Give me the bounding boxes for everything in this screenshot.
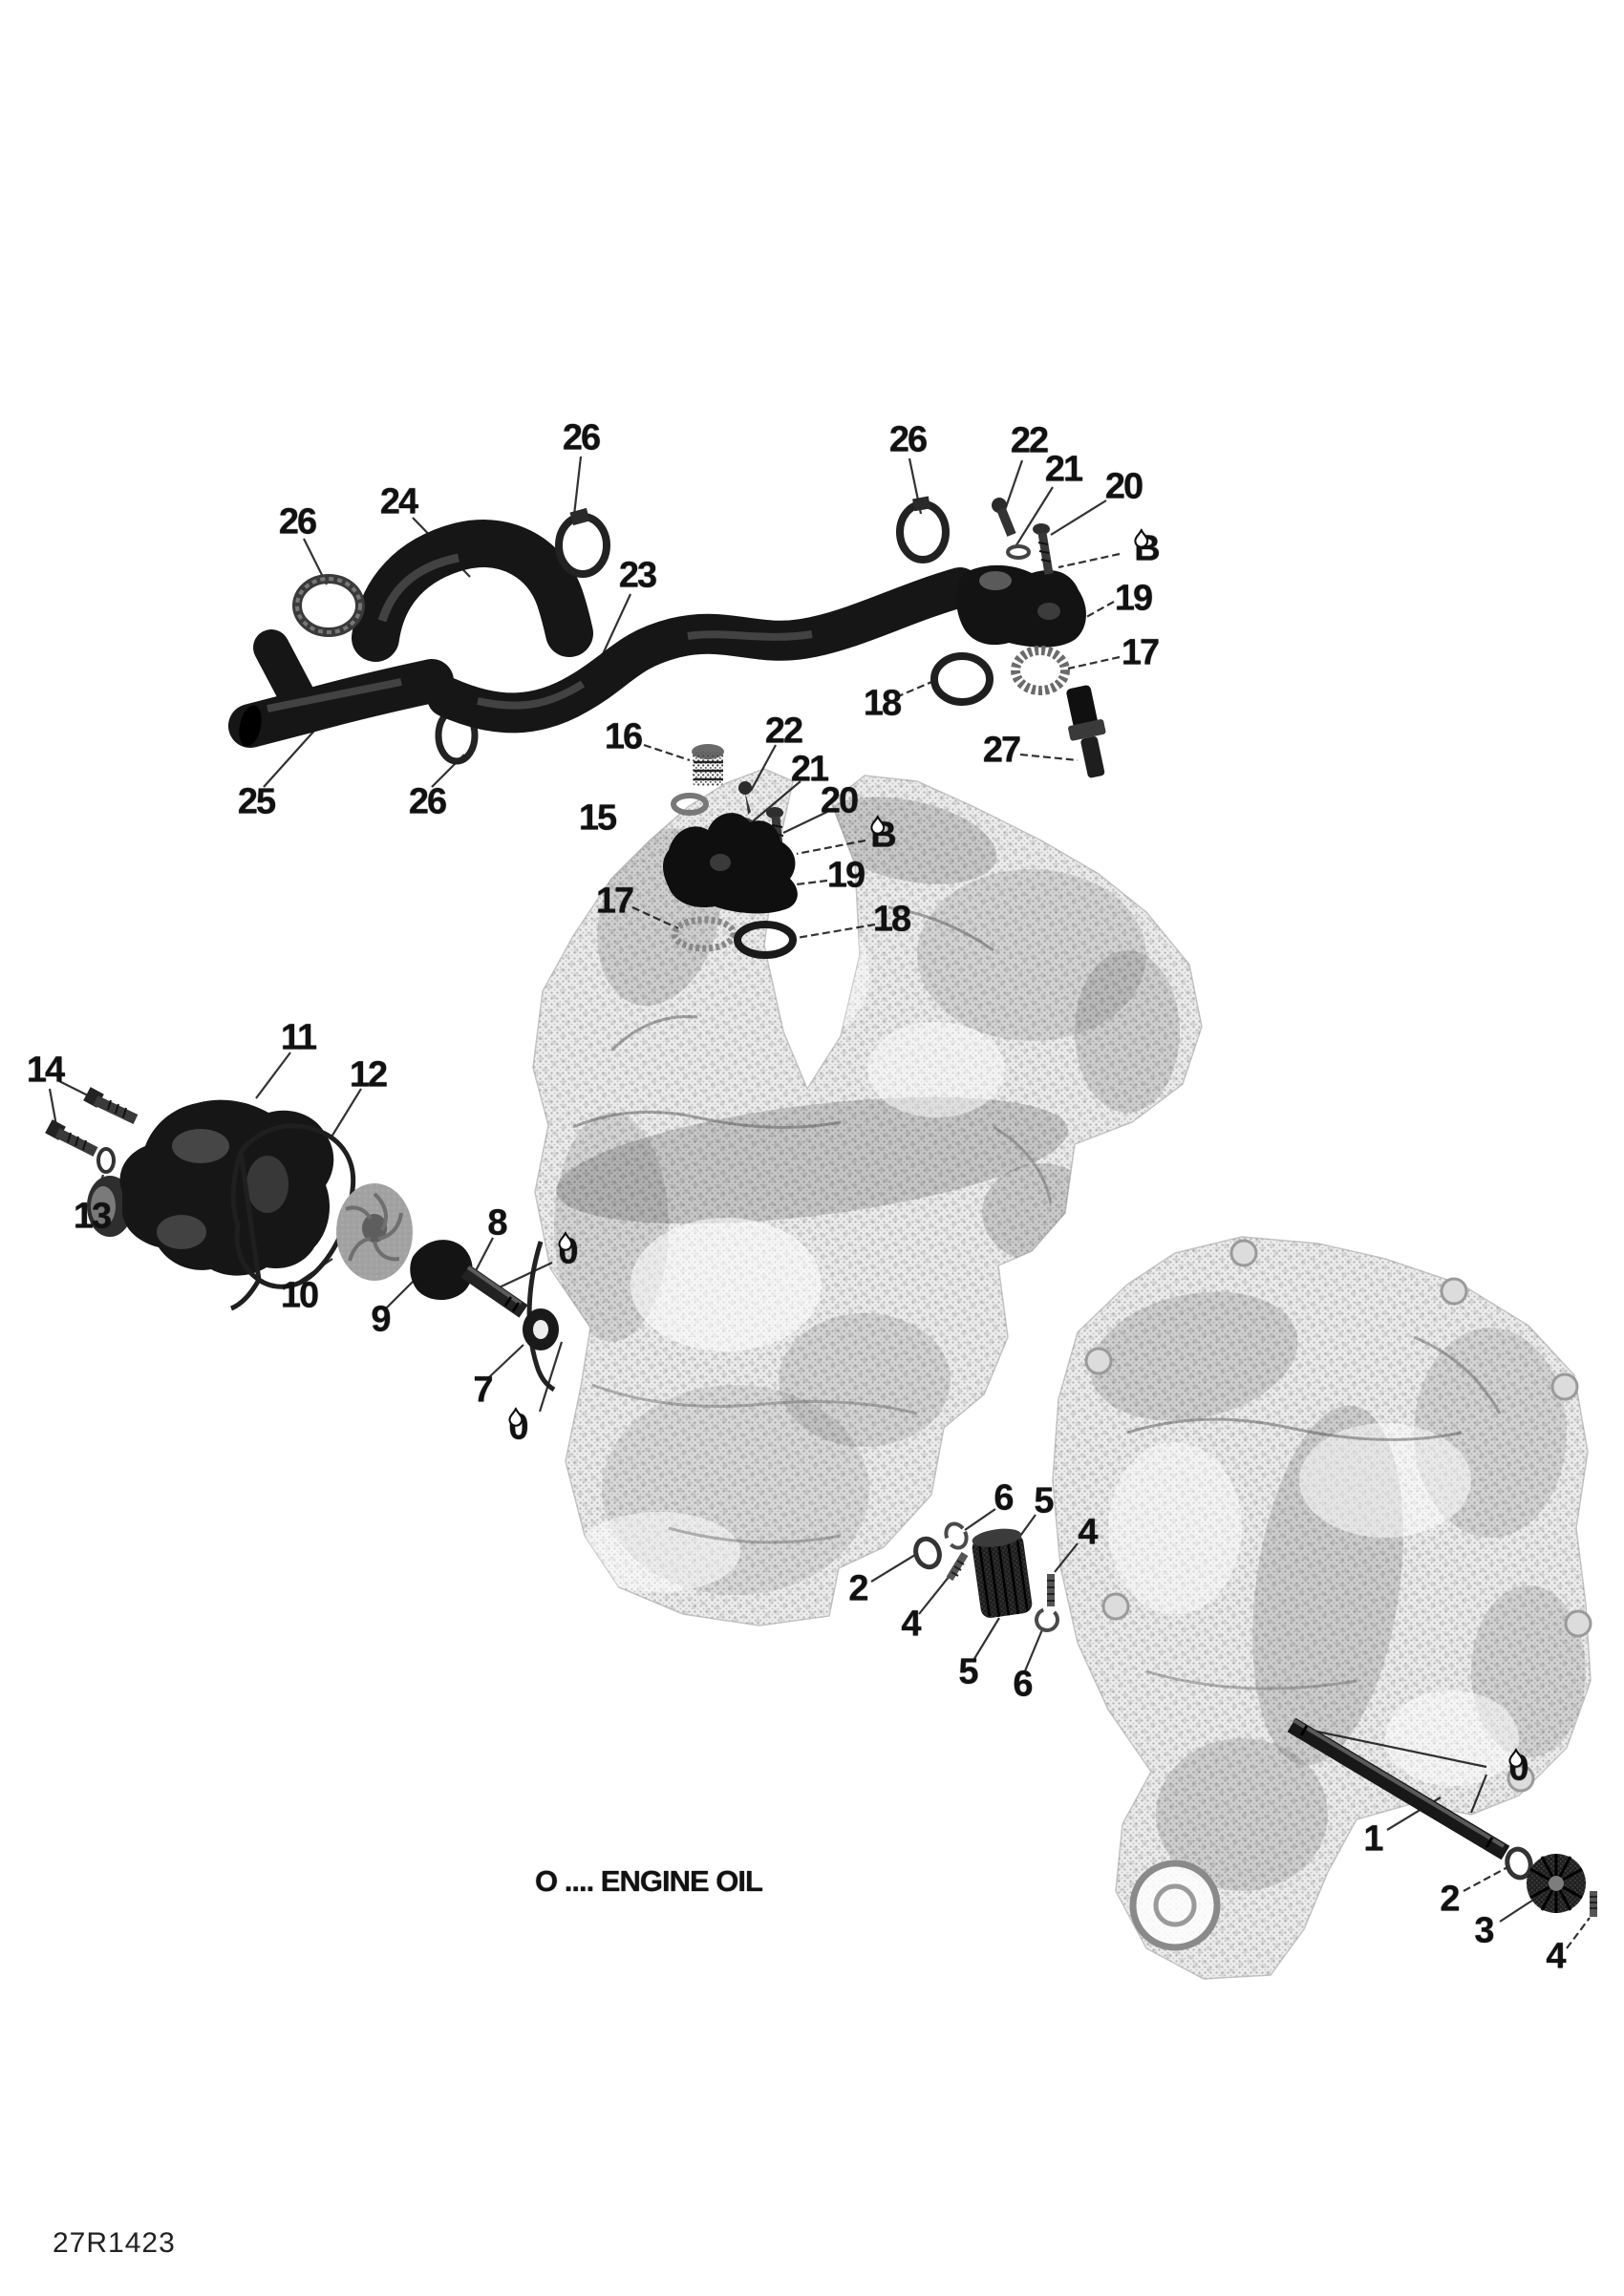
callout-8: 8: [487, 1203, 505, 1244]
bolt-14-lower: [45, 1119, 96, 1152]
drawing-code: 27R1423: [53, 2227, 176, 2260]
callout-text: 4: [901, 1605, 919, 1646]
callout-text: 26: [563, 418, 599, 459]
callout-text: 5: [1034, 1481, 1052, 1522]
callout-10: 10: [281, 1276, 317, 1317]
parts-diagram-page: 26242623252626222120B191718271622212015B…: [0, 0, 1624, 2296]
callout-25: 25: [238, 782, 274, 823]
callout-23: 23: [619, 556, 655, 597]
callout-text: 11: [281, 1018, 315, 1059]
callout-12: 12: [350, 1055, 386, 1096]
callout-text: 6: [1013, 1665, 1031, 1706]
callout-4: 4: [1546, 1937, 1564, 1978]
callout-6: 6: [994, 1478, 1012, 1520]
callout-text: 15: [579, 798, 615, 840]
screw-20-top: [1033, 523, 1051, 574]
callout-4: 4: [1078, 1513, 1096, 1554]
callout-16: 16: [605, 717, 641, 758]
callout-18: 18: [873, 900, 909, 941]
callout-text: 20: [1105, 467, 1142, 508]
pin-4-left: [950, 1554, 965, 1579]
callout-text: 18: [873, 900, 909, 941]
callout-2: 2: [848, 1569, 866, 1610]
fitting-16: [692, 744, 724, 786]
temperature-sensor-27: [1060, 683, 1115, 780]
coolant-hose-25: [236, 648, 432, 749]
callout-text: 26: [889, 420, 926, 461]
hose-clamp-26-top: [559, 508, 607, 574]
callout-3: 3: [1474, 1911, 1492, 1952]
callout-text: 22: [1011, 421, 1047, 462]
callout-19: 19: [1115, 579, 1151, 620]
callout-4: 4: [901, 1605, 919, 1646]
washer-17-top: [1015, 650, 1065, 691]
callout-text: 7: [473, 1371, 491, 1412]
callout-26: 26: [409, 782, 445, 823]
callout-9: 9: [371, 1300, 389, 1341]
callout-text: 2: [1440, 1880, 1458, 1921]
callout-21: 21: [1045, 450, 1081, 491]
oil-droplet-icon: [1508, 1749, 1523, 1769]
callout-text: 14: [27, 1051, 63, 1092]
callout-0: 0: [1508, 1749, 1527, 1790]
oil-droplet-icon: [1134, 529, 1148, 549]
callout-20: 20: [1105, 467, 1142, 508]
diagram-canvas: [0, 0, 1624, 2296]
callout-18: 18: [864, 684, 900, 725]
circlip-6-bottom: [1033, 1605, 1061, 1634]
callout-26: 26: [279, 502, 315, 543]
bolt-22-top: [992, 498, 1012, 535]
pump-shaft-gear-9-8: [410, 1240, 524, 1311]
drive-gear-3: [1527, 1854, 1586, 1913]
callout-27: 27: [983, 731, 1019, 772]
callout-text: 21: [1045, 450, 1081, 491]
callout-6: 6: [1013, 1665, 1031, 1706]
callout-text: 1: [1363, 1819, 1381, 1860]
callout-text: 24: [380, 482, 417, 523]
callout-text: 5: [958, 1652, 976, 1693]
pin-4-right: [1047, 1574, 1055, 1606]
callout-text: 4: [1546, 1937, 1564, 1978]
callout-text: 13: [74, 1197, 110, 1238]
callout-text: 17: [596, 882, 632, 923]
callout-text: 25: [238, 782, 274, 823]
callout-15: 15: [579, 798, 615, 840]
callout-text: 8: [487, 1203, 505, 1244]
callout-22: 22: [765, 712, 801, 753]
callout-B: B: [1134, 529, 1158, 570]
callout-17: 17: [1122, 633, 1158, 674]
callout-text: 18: [864, 684, 900, 725]
callout-text: 22: [765, 712, 801, 753]
callout-24: 24: [380, 482, 417, 523]
pin-4-bottom-right: [1590, 1891, 1597, 1917]
oil-legend: O .... ENGINE OIL: [535, 1864, 762, 1899]
callout-2: 2: [1440, 1880, 1458, 1921]
callout-text: 26: [409, 782, 445, 823]
o-ring-18-top: [934, 656, 990, 702]
callout-text: 19: [827, 856, 864, 897]
oil-pump-gear-5: [970, 1526, 1033, 1620]
o-ring-2-mid: [912, 1536, 944, 1570]
callout-5: 5: [958, 1652, 976, 1693]
callout-text: 6: [994, 1478, 1012, 1520]
callout-1: 1: [1363, 1819, 1381, 1860]
callout-7: 7: [473, 1371, 491, 1412]
callout-0: 0: [558, 1232, 576, 1273]
hose-ring-26-left: [297, 579, 360, 632]
thermostat-housing-19-top: [956, 565, 1086, 648]
callout-5: 5: [1034, 1481, 1052, 1522]
shaft-seal-7: [523, 1308, 559, 1350]
oil-droplet-icon: [870, 816, 885, 836]
callout-text: 20: [821, 781, 857, 822]
callout-text: 3: [1474, 1911, 1492, 1952]
callout-14: 14: [27, 1051, 63, 1092]
impeller-10: [336, 1183, 413, 1281]
callout-19: 19: [827, 856, 864, 897]
callout-text: 12: [350, 1055, 386, 1096]
callout-text: 19: [1115, 579, 1151, 620]
callout-26: 26: [889, 420, 926, 461]
callout-text: 2: [848, 1569, 866, 1610]
callout-text: 9: [371, 1300, 389, 1341]
callout-22: 22: [1011, 421, 1047, 462]
oil-droplet-icon: [508, 1408, 523, 1428]
callout-20: 20: [821, 781, 857, 822]
callout-13: 13: [74, 1197, 110, 1238]
callout-text: 23: [619, 556, 655, 597]
callout-0: 0: [508, 1408, 526, 1449]
callout-text: 4: [1078, 1513, 1096, 1554]
callout-text: 26: [279, 502, 315, 543]
coolant-hose-24: [375, 543, 569, 638]
callout-B: B: [870, 816, 894, 857]
o-ring-13: [98, 1149, 114, 1172]
callout-text: 27: [983, 731, 1019, 772]
callout-17: 17: [596, 882, 632, 923]
callout-text: 16: [605, 717, 641, 758]
bolt-14-upper: [83, 1087, 136, 1119]
callout-text: 10: [281, 1276, 317, 1317]
circlip-6-top: [942, 1520, 970, 1551]
callout-text: 17: [1122, 633, 1158, 674]
oil-droplet-icon: [558, 1232, 572, 1252]
hose-clamp-26-right: [900, 497, 946, 560]
callout-26: 26: [563, 418, 599, 459]
washer-21-top: [1008, 546, 1029, 558]
callout-11: 11: [281, 1018, 315, 1059]
